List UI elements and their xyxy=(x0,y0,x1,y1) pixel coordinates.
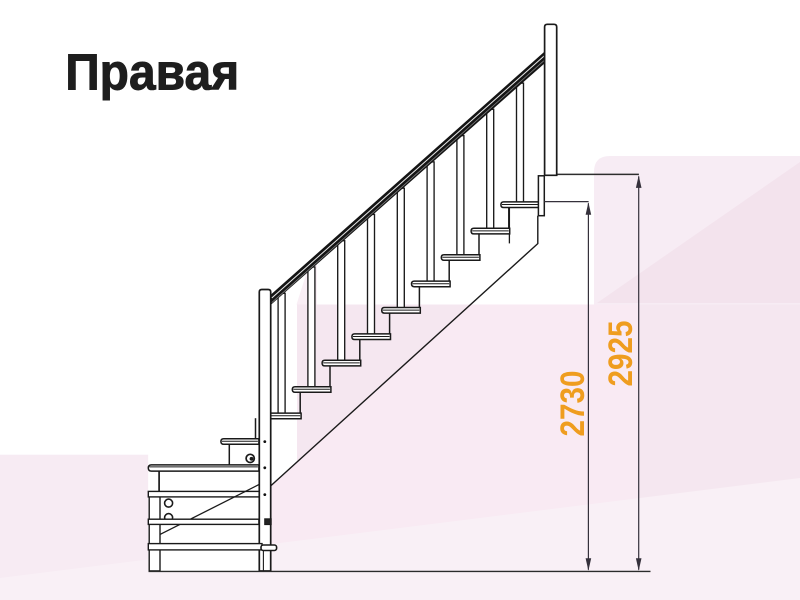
svg-text:2925: 2925 xyxy=(602,321,640,387)
svg-text:Правая: Правая xyxy=(65,44,239,101)
svg-text:2730: 2730 xyxy=(554,371,592,437)
